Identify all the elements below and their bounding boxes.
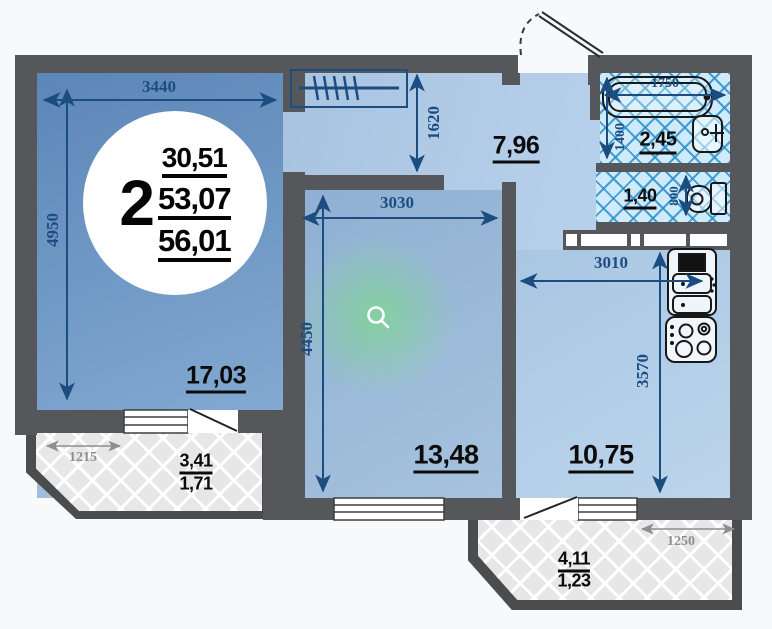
stove-icon [666, 317, 716, 362]
window-kitchen [578, 498, 637, 520]
dim-balcony-right-width: 1250 [667, 534, 695, 550]
magnifier-icon[interactable] [369, 308, 389, 328]
balcony-left-area-bottom: 1,71 [179, 474, 212, 495]
kitchen-area-label: 10,75 [568, 440, 633, 471]
plan-linework [0, 0, 772, 629]
bath-area-label: 2,45 [640, 129, 677, 152]
wardrobe-icon [291, 70, 407, 107]
balcony-right-area-bottom: 1,23 [557, 571, 590, 592]
entrance-opening [518, 55, 588, 73]
balcony-door-living [188, 409, 238, 433]
balcony-door-kitchen [520, 497, 578, 520]
area-apartment: 53,07 [158, 183, 231, 220]
dim-kitchen-width: 3010 [594, 253, 628, 273]
dim-hall-depth: 1620 [424, 106, 444, 140]
dim-kitchen-depth: 3570 [633, 354, 653, 388]
entrance-door-swing [520, 14, 539, 55]
dim-bath-depth: 1400 [613, 123, 629, 151]
entrance-door-leaf [542, 12, 603, 53]
dim-living-width: 3440 [142, 77, 176, 97]
dim-bath-width: 1750 [651, 76, 679, 92]
dim-bedroom-width: 3030 [380, 193, 414, 213]
living-area-label: 17,03 [186, 362, 246, 391]
hall-area-label: 7,96 [493, 132, 540, 161]
balcony-right-area-top: 4,11 [558, 549, 590, 570]
balcony-left-area-top: 3,41 [179, 451, 212, 472]
wc-area-label: 1,40 [623, 186, 656, 207]
dim-living-depth: 4950 [43, 213, 63, 247]
area-living-total: 30,51 [162, 144, 227, 178]
window-living [124, 410, 188, 433]
area-full: 56,01 [158, 225, 231, 262]
dim-bedroom-depth: 4450 [297, 322, 317, 356]
dim-wc-depth: 800 [666, 186, 682, 206]
floor-plan-canvas[interactable]: 3440 4950 1620 3030 4450 3010 3570 1750 … [0, 0, 772, 629]
toilet-icon [687, 183, 726, 214]
window-bedroom [334, 498, 444, 520]
bedroom-area-label: 13,48 [413, 440, 478, 471]
apartment-info-badge: 2 30,51 53,07 56,01 [83, 111, 267, 295]
entrance-door-leaf [539, 16, 600, 57]
dim-balcony-left-width: 1215 [69, 450, 97, 466]
bath-sink-icon [693, 116, 724, 152]
room-count: 2 [119, 171, 153, 235]
